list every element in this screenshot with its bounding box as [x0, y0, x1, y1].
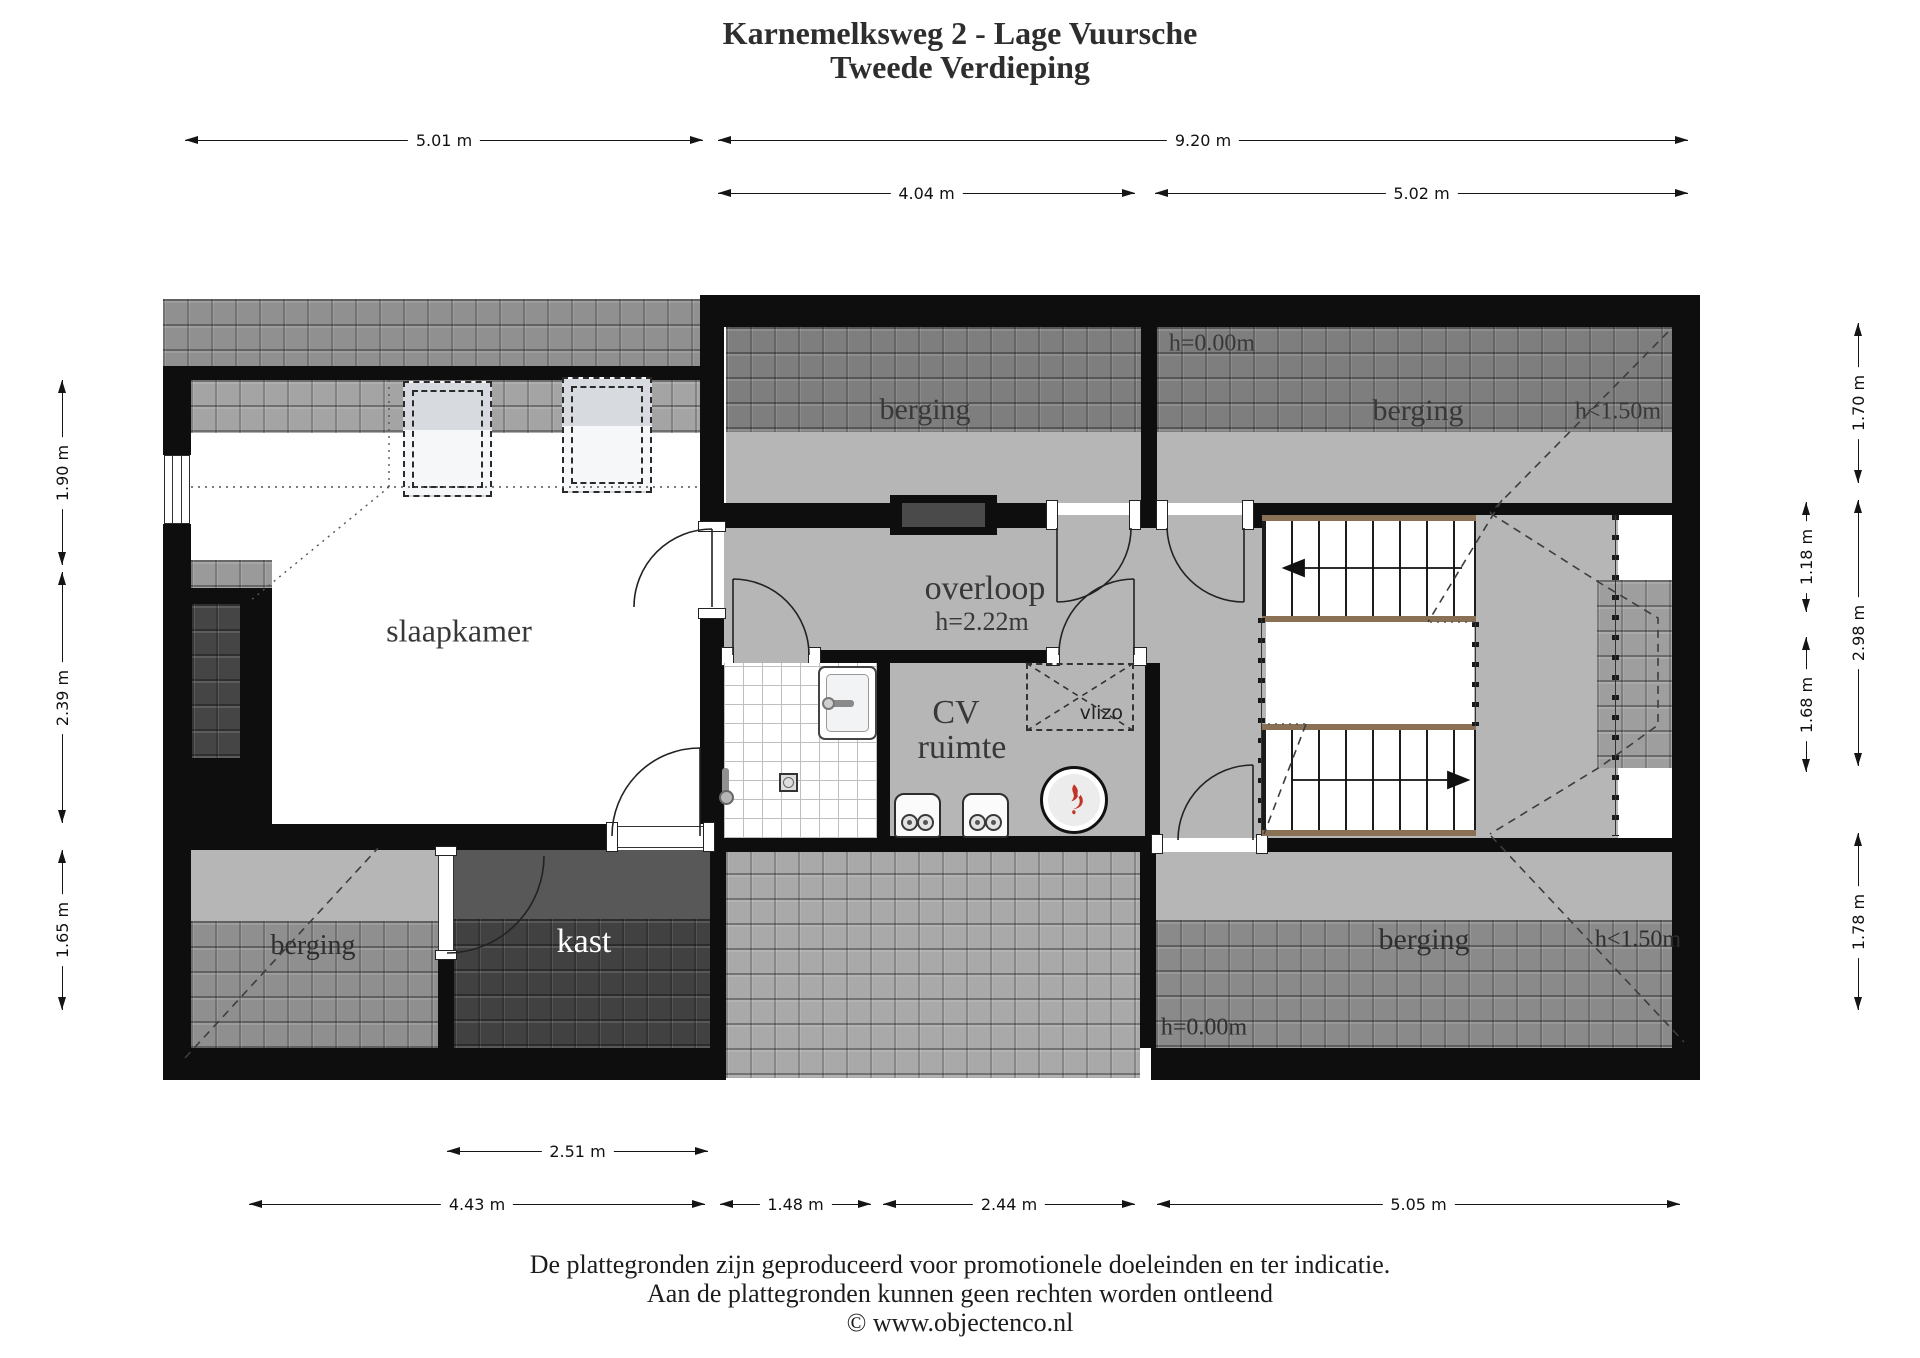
- room-label-berging-bottom-left: berging: [270, 930, 355, 962]
- dim-label: 2.39 m: [54, 661, 72, 733]
- door-leaf-kast: [438, 851, 454, 954]
- dim-right-1-68: 1.68 m: [1806, 637, 1807, 772]
- dim-label: 2.44 m: [973, 1196, 1045, 1214]
- kast-band: [454, 850, 710, 919]
- room-label-cv: CV: [932, 694, 979, 732]
- dim-bottom-2-51: 2.51 m: [447, 1151, 708, 1152]
- berging-br-band: [1156, 852, 1672, 920]
- door-jamb: [1156, 500, 1168, 530]
- cv-boiler: [1040, 766, 1108, 834]
- wall-berging-bottom-c: [1253, 503, 1262, 528]
- note-height-zero-bottom: h=0.00m: [1161, 1015, 1247, 1042]
- copyright: © www.objectenco.nl: [0, 1308, 1920, 1337]
- dim-label: 1.70 m: [1850, 367, 1868, 439]
- wall-berging-bottom-a: [718, 503, 1048, 528]
- cv-vessel: [894, 793, 941, 838]
- berging-top-floor: [726, 432, 1672, 503]
- berging-bl-band: [191, 850, 438, 921]
- stair-nosing: [1262, 830, 1476, 836]
- dim-label: 1.48 m: [759, 1196, 831, 1214]
- dim-left-1-65: 1.65 m: [62, 850, 63, 1010]
- room-label-berging-top-left: berging: [879, 393, 970, 427]
- dim-left-1-90: 1.90 m: [62, 380, 63, 565]
- vlizo-hatch: vlizo: [1026, 663, 1134, 731]
- room-label-overloop: overloop: [925, 570, 1046, 608]
- room-label-berging-bottom-right: berging: [1378, 923, 1469, 957]
- skylight-window: [403, 381, 492, 497]
- disclaimer-line2: Aan de plattegronden kunnen geen rechten…: [0, 1279, 1920, 1308]
- dim-top-9-20: 9.20 m: [718, 140, 1688, 141]
- dim-label: 4.04 m: [890, 185, 962, 203]
- wall-slaapkamer-right-a: [700, 327, 724, 527]
- disclaimer: De plattegronden zijn geproduceerd voor …: [0, 1250, 1920, 1337]
- skylight-inner-frame: [412, 390, 483, 488]
- dim-bottom-4-43: 4.43 m: [249, 1204, 705, 1205]
- room-label-berging-top-right: berging: [1372, 394, 1463, 428]
- dim-bottom-5-05: 5.05 m: [1157, 1204, 1680, 1205]
- window-left-wall: [164, 455, 190, 524]
- door-jamb: [1151, 834, 1163, 854]
- note-height-lt150-bottom: h<1.50m: [1595, 927, 1681, 954]
- faucet-knob-icon: [822, 697, 835, 710]
- room-label-slaapkamer: slaapkamer: [386, 613, 532, 650]
- dim-left-2-39: 2.39 m: [62, 572, 63, 823]
- roof-strip-top-left: [163, 299, 700, 366]
- shower-drain-icon: [779, 773, 798, 792]
- door-jamb: [1256, 834, 1268, 854]
- dormer-roof-wedge: [191, 560, 272, 588]
- wall-berging-bottom-d: [1262, 503, 1672, 515]
- wall-bathroom-right: [877, 663, 890, 838]
- dim-right-1-70: 1.70 m: [1858, 323, 1859, 483]
- dim-right-1-78: 1.78 m: [1858, 833, 1859, 1010]
- page-title: Karnemelksweg 2 - Lage Vuursche Tweede V…: [0, 16, 1920, 84]
- dim-label: 9.20 m: [1167, 132, 1239, 150]
- door-jamb: [435, 846, 457, 856]
- vessel-cap-icon: [917, 814, 934, 831]
- dim-label: 5.01 m: [408, 132, 480, 150]
- flame-icon: [1061, 784, 1087, 816]
- door-jamb: [1129, 500, 1141, 530]
- dim-bottom-2-44: 2.44 m: [883, 1204, 1135, 1205]
- stair-nosing: [1262, 724, 1476, 730]
- title-floor: Tweede Verdieping: [0, 50, 1920, 84]
- dim-label: 1.18 m: [1798, 521, 1816, 593]
- door-jamb: [606, 822, 618, 852]
- dim-label: 2.51 m: [541, 1143, 613, 1161]
- stair-flight-lower: [1262, 724, 1476, 836]
- skylight-inner-frame: [571, 386, 643, 484]
- dim-right-2-98: 2.98 m: [1858, 500, 1859, 766]
- roof-patch-right: [1597, 580, 1672, 768]
- stair-flight-upper: [1262, 515, 1476, 622]
- wall-right: [1672, 295, 1700, 1080]
- doorway-berging-br: [1163, 838, 1256, 852]
- vessel-cap-icon: [901, 814, 918, 831]
- door-jamb: [1046, 500, 1058, 530]
- stair-nosing: [1262, 616, 1476, 622]
- vlizo-label: vlizo: [1080, 702, 1123, 724]
- shower-head-icon: [719, 790, 734, 805]
- door-jamb: [698, 521, 726, 532]
- door-jamb: [1133, 647, 1147, 666]
- stair-railing-well: [1472, 622, 1479, 726]
- stair-railing-left: [1258, 618, 1265, 836]
- dim-label: 2.98 m: [1850, 597, 1868, 669]
- dim-top-5-01: 5.01 m: [185, 140, 703, 141]
- wall-left-upper: [163, 366, 191, 455]
- dim-label: 1.65 m: [54, 894, 72, 966]
- dim-label: 4.43 m: [441, 1196, 513, 1214]
- vessel-cap-icon: [985, 814, 1002, 831]
- dim-right-1-18: 1.18 m: [1806, 502, 1807, 612]
- wall-bottom-right: [1151, 1048, 1700, 1080]
- door-jamb: [1242, 500, 1254, 530]
- dormer-roof-dark: [192, 604, 240, 758]
- wall-cv-right: [1145, 663, 1160, 838]
- wall-berging-divider: [1141, 327, 1157, 515]
- dim-label: 1.78 m: [1850, 885, 1868, 957]
- wall-berging-kast: [438, 954, 454, 1048]
- wall-mid-bottom-a: [718, 836, 1151, 852]
- doorway-slaapkamer-kast-zone: [615, 826, 706, 848]
- wall-bathroom-top: [820, 650, 890, 663]
- title-address: Karnemelksweg 2 - Lage Vuursche: [0, 16, 1920, 50]
- roof-strip-bottom-middle: [726, 848, 1140, 1078]
- floorplan-page: Karnemelksweg 2 - Lage Vuursche Tweede V…: [0, 0, 1920, 1358]
- dim-top-4-04: 4.04 m: [718, 193, 1135, 194]
- note-height-lt150-top: h<1.50m: [1575, 399, 1661, 426]
- skylight-window: [562, 377, 652, 493]
- note-overloop-height: h=2.22m: [935, 607, 1028, 637]
- wall-slaapkamer-bottom-a: [163, 824, 615, 850]
- door-swing-slaapkamer-bottom: [612, 748, 700, 836]
- doorway-slaapkamer: [701, 527, 723, 615]
- wall-kast-right: [710, 850, 726, 1048]
- stair-well: [1266, 622, 1474, 724]
- wall-mid-bottom-b: [1265, 838, 1700, 852]
- chimney-inner: [902, 503, 985, 527]
- door-jamb: [435, 950, 457, 960]
- stair-nosing: [1262, 515, 1476, 521]
- dim-label: 5.02 m: [1385, 185, 1457, 203]
- wall-bottom-left: [163, 1048, 726, 1080]
- disclaimer-line1: De plattegronden zijn geproduceerd voor …: [0, 1250, 1920, 1279]
- dim-label: 1.90 m: [54, 436, 72, 508]
- note-height-zero-top: h=0.00m: [1169, 331, 1255, 358]
- door-jamb: [698, 608, 726, 619]
- room-label-kast: kast: [557, 923, 612, 961]
- dim-bottom-1-48: 1.48 m: [720, 1204, 871, 1205]
- wall-cv-top: [890, 650, 1048, 663]
- door-jamb: [703, 822, 715, 852]
- room-label-cv-ruimte: ruimte: [918, 729, 1007, 767]
- cv-vessel: [962, 793, 1009, 838]
- wall-berging-br-left: [1140, 852, 1156, 1048]
- vessel-cap-icon: [969, 814, 986, 831]
- dim-top-5-02: 5.02 m: [1155, 193, 1688, 194]
- sink: [818, 666, 877, 740]
- dim-label: 5.05 m: [1382, 1196, 1454, 1214]
- wall-top: [700, 295, 1700, 327]
- dim-label: 1.68 m: [1798, 668, 1816, 740]
- void-railing: [1612, 515, 1619, 836]
